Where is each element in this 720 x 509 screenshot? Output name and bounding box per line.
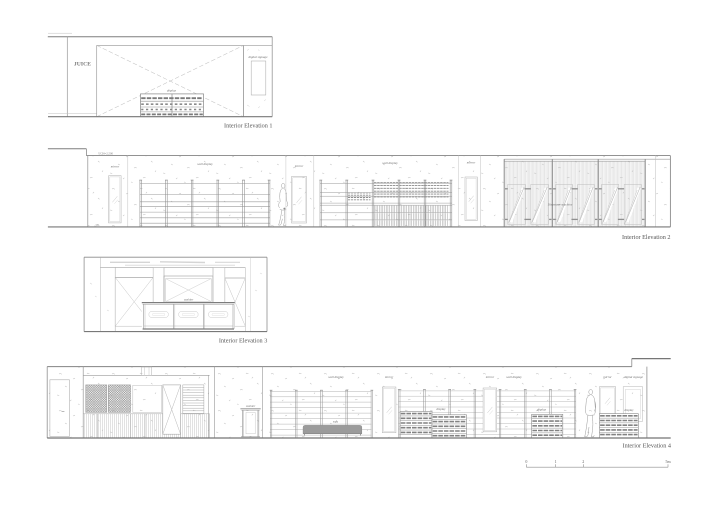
svg-text:mirror: mirror: [385, 375, 394, 379]
svg-text:mirror: mirror: [295, 164, 304, 168]
svg-text:0: 0: [525, 459, 527, 464]
svg-text:Interior Elevation 1: Interior Elevation 1: [224, 123, 272, 130]
svg-text:mirror: mirror: [486, 375, 495, 379]
svg-text:Interior Elevation 2: Interior Elevation 2: [622, 234, 670, 241]
svg-text:1: 1: [555, 459, 557, 464]
svg-text:display: display: [167, 89, 177, 93]
svg-text:wall display: wall display: [328, 375, 344, 379]
svg-text:digital signage: digital signage: [624, 375, 644, 379]
svg-text:5m: 5m: [665, 459, 671, 464]
svg-text:cashier: cashier: [246, 404, 256, 408]
svg-text:digital signage: digital signage: [248, 55, 268, 59]
svg-text:mirror: mirror: [603, 375, 612, 379]
svg-text:Interior Elevation 4: Interior Elevation 4: [623, 443, 671, 450]
svg-text:2: 2: [582, 459, 584, 464]
svg-text:wall display: wall display: [197, 162, 213, 166]
svg-text:sofa: sofa: [333, 419, 339, 423]
svg-text:wall display: wall display: [382, 161, 398, 165]
svg-text:Dispenser machine: Dispenser machine: [547, 202, 573, 206]
svg-text:mirror: mirror: [111, 165, 120, 169]
svg-text:JUICE: JUICE: [74, 61, 91, 67]
svg-text:display: display: [624, 408, 634, 412]
svg-text:Interior Elevation 3: Interior Elevation 3: [219, 337, 267, 344]
svg-text:display: display: [537, 408, 547, 412]
svg-text:mirror: mirror: [467, 161, 476, 165]
svg-text:wall display: wall display: [506, 375, 522, 379]
svg-text:cashier: cashier: [184, 298, 194, 302]
svg-text:display: display: [436, 407, 446, 411]
